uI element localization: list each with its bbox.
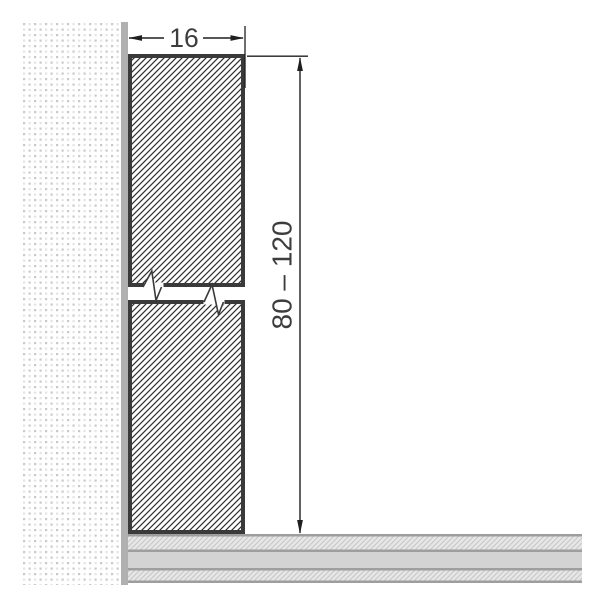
skirting-profile-upper — [130, 56, 243, 301]
technical-drawing: 16 80 – 120 — [0, 0, 604, 604]
floor-top-line — [128, 534, 582, 537]
wall-surface-strip — [121, 22, 128, 585]
wall-section — [23, 22, 128, 585]
floor-screed-lower — [128, 571, 582, 581]
skirting-profile-lower — [130, 285, 243, 533]
floor-core-layer — [128, 552, 582, 568]
floor-divider-line-2 — [128, 568, 582, 571]
wall-stipple-area — [23, 22, 121, 585]
floor-bottom-line — [128, 581, 582, 584]
drawing-svg: 16 80 – 120 — [0, 0, 604, 604]
floor-section — [128, 534, 582, 583]
profile-upper-body — [130, 56, 243, 285]
height-dimension-label: 80 – 120 — [267, 221, 298, 330]
profile-lower-body — [130, 302, 243, 532]
width-dimension-label: 16 — [169, 23, 198, 53]
break-erase-lower — [204, 298, 225, 305]
floor-divider-line-1 — [128, 550, 582, 553]
floor-screed-upper — [128, 537, 582, 550]
